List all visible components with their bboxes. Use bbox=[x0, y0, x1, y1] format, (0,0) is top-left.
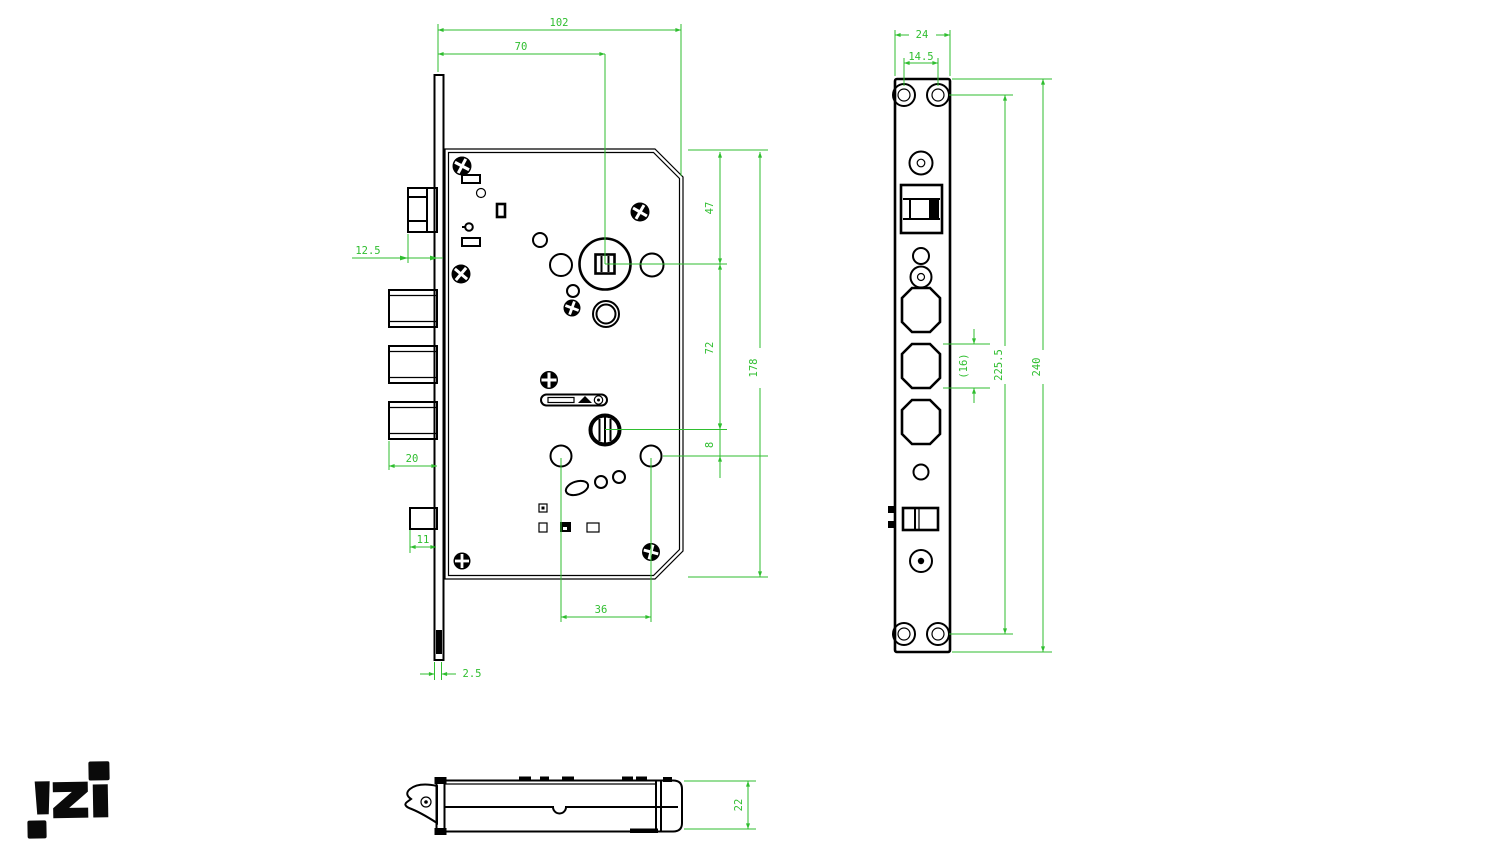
detent-slider bbox=[541, 395, 607, 406]
dim-lower-hole-spacing: 36 bbox=[595, 604, 608, 616]
dim-aux-bolt: 11 bbox=[417, 534, 430, 546]
pin-hole bbox=[910, 550, 932, 572]
internal-parts-upper bbox=[462, 175, 547, 247]
dim-top-to-spindle: 47 bbox=[704, 202, 716, 215]
faceplate-dimensions: 24 14.5 (16) 225.5 240 bbox=[895, 29, 1052, 652]
screw-icon bbox=[451, 155, 473, 177]
deadbolt-1 bbox=[389, 290, 437, 327]
pin-hole bbox=[910, 152, 933, 175]
screw-hole bbox=[927, 623, 949, 645]
deadbolt-opening-3 bbox=[902, 400, 940, 444]
logo-glyph-exclaim bbox=[27, 781, 51, 838]
pin-hole bbox=[911, 267, 932, 288]
deadbolt-2 bbox=[389, 346, 437, 383]
deadbolt-opening-2 bbox=[902, 344, 940, 388]
small-hole bbox=[913, 248, 929, 264]
dim-overall-width: 102 bbox=[550, 17, 569, 29]
faceplate-front-view bbox=[888, 79, 950, 652]
dim-plate-thickness: 2.5 bbox=[463, 668, 482, 680]
dim-screw-spacing: 14.5 bbox=[908, 51, 933, 63]
screw-icon bbox=[629, 201, 651, 223]
dim-latch-offset: 12.5 bbox=[355, 245, 380, 257]
faceplate-edge-fill bbox=[436, 630, 442, 654]
dim-faceplate-width: 24 bbox=[916, 29, 929, 41]
logo-glyph-i bbox=[88, 761, 110, 817]
side-view-dimensions: 102 70 12.5 20 11 2.5 47 72 8 178 bbox=[352, 17, 768, 680]
deadbolt-3 bbox=[389, 402, 437, 439]
dim-screw-span: 225.5 bbox=[993, 349, 1005, 381]
dim-spindle-to-cylinder: 72 bbox=[704, 342, 716, 355]
bushing-ring bbox=[593, 301, 619, 327]
drawing-canvas: 102 70 12.5 20 11 2.5 47 72 8 178 bbox=[0, 0, 1499, 862]
lock-bottom-view bbox=[405, 777, 682, 836]
dim-bolt-hole-height: (16) bbox=[958, 353, 970, 378]
aux-bolt bbox=[410, 508, 437, 529]
screw-icon bbox=[540, 371, 558, 389]
screw-icons bbox=[450, 155, 660, 569]
brand-logo: izi bbox=[26, 761, 110, 838]
latch-bolt bbox=[408, 188, 437, 232]
latch-opening bbox=[901, 185, 942, 233]
screw-hole bbox=[927, 84, 949, 106]
dim-case-height: 178 bbox=[748, 359, 760, 378]
hole-right-of-hub bbox=[641, 254, 664, 277]
screw-icon bbox=[563, 299, 581, 317]
technical-drawing: 102 70 12.5 20 11 2.5 47 72 8 178 bbox=[0, 0, 1499, 862]
bottom-view-dimensions: 22 bbox=[684, 781, 756, 829]
deadbolt-opening-1 bbox=[902, 288, 940, 332]
logo-glyph-z bbox=[53, 782, 89, 819]
screw-icon bbox=[454, 553, 471, 570]
dim-case-thickness: 22 bbox=[733, 799, 745, 812]
latch-wedge bbox=[405, 785, 437, 823]
faceplate-edge bbox=[435, 75, 444, 660]
dim-faceplate-height: 240 bbox=[1031, 358, 1043, 377]
small-hole bbox=[914, 465, 929, 480]
hole-left-of-hub bbox=[550, 254, 572, 276]
screw-icon bbox=[450, 263, 473, 286]
small-hole bbox=[567, 285, 579, 297]
dim-bolt-throw: 20 bbox=[406, 453, 419, 465]
lock-side-view bbox=[389, 75, 683, 660]
internal-parts-lower bbox=[539, 471, 625, 532]
dim-backset: 70 bbox=[515, 41, 528, 53]
case-body-bottom-view bbox=[445, 777, 683, 834]
dim-cylinder-to-handle: 8 bbox=[704, 442, 716, 448]
